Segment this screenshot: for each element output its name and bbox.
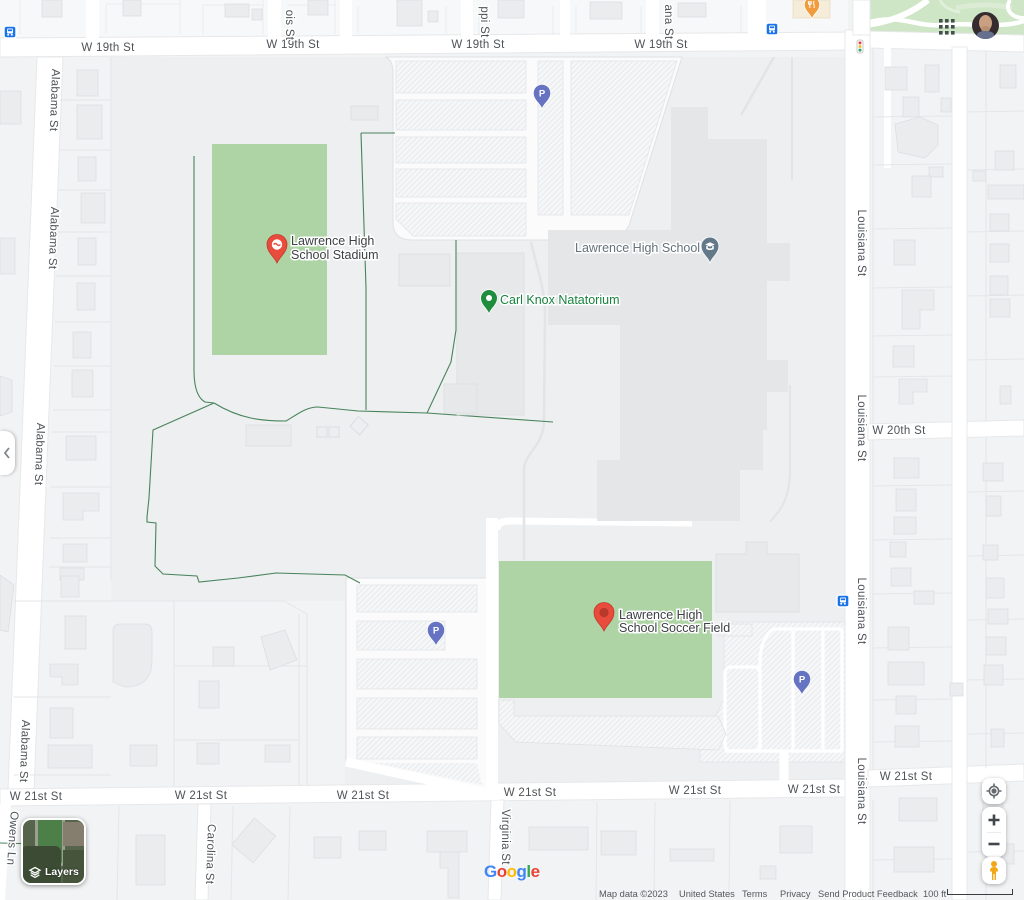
svg-text:Virginia St: Virginia St (499, 809, 511, 865)
svg-text:Lawrence High: Lawrence High (291, 234, 374, 248)
svg-text:W 21st St: W 21st St (880, 771, 933, 783)
svg-text:W 21st St: W 21st St (175, 790, 228, 802)
svg-text:Lawrence High: Lawrence High (619, 608, 702, 622)
svg-text:W 20th St: W 20th St (872, 425, 926, 437)
svg-text:Louisiana St: Louisiana St (855, 758, 867, 825)
svg-text:W 19th St: W 19th St (266, 39, 320, 51)
svg-text:W 19th St: W 19th St (451, 39, 505, 51)
svg-text:Carolina St: Carolina St (203, 824, 217, 885)
svg-text:ois St: ois St (283, 10, 295, 41)
svg-text:W 21st St: W 21st St (504, 787, 557, 799)
svg-text:Alabama St: Alabama St (46, 207, 60, 270)
svg-text:ana St: ana St (662, 4, 674, 40)
svg-text:P: P (433, 626, 440, 637)
svg-text:W 21st St: W 21st St (669, 785, 722, 797)
svg-text:Carl Knox Natatorium: Carl Knox Natatorium (500, 293, 620, 307)
svg-text:W 19th St: W 19th St (81, 42, 135, 54)
svg-text:Alabama St: Alabama St (47, 69, 61, 132)
svg-text:W 21st St: W 21st St (788, 784, 841, 796)
svg-text:Louisiana St: Louisiana St (855, 395, 867, 462)
svg-text:Alabama St: Alabama St (17, 720, 31, 783)
svg-text:School Stadium: School Stadium (291, 248, 379, 262)
svg-text:Lawrence High School: Lawrence High School (575, 241, 700, 255)
svg-text:W 21st St: W 21st St (337, 790, 390, 802)
svg-text:Louisiana St: Louisiana St (855, 210, 867, 277)
svg-text:School Soccer Field: School Soccer Field (619, 621, 730, 635)
svg-text:Alabama St: Alabama St (32, 423, 46, 486)
svg-text:P: P (539, 89, 546, 100)
svg-text:Louisiana St: Louisiana St (855, 578, 867, 645)
svg-text:ppi St: ppi St (478, 6, 490, 38)
svg-text:W 21st St: W 21st St (10, 791, 63, 803)
svg-text:P: P (799, 675, 806, 686)
svg-text:W 19th St: W 19th St (634, 39, 688, 51)
